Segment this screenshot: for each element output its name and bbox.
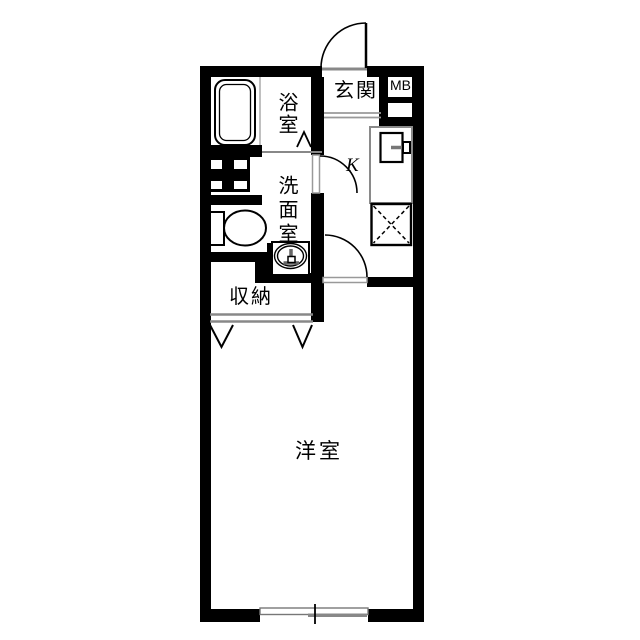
floorplan: 玄関 MB 浴室 洗面室 K 収納 洋室 [0,0,640,640]
entrance-door-arc [321,23,366,68]
closet-doors-icon [210,315,313,348]
label-storage: 収納 [229,287,273,308]
label-kitchen: K [346,156,359,176]
bath-door-marker-icon [297,132,311,147]
label-meter-box: MB [388,78,413,93]
genkan-step-icon [324,113,381,118]
room-door-leaf [323,278,367,283]
kitchen-door-leaf [313,155,320,193]
toilet-icon [210,211,266,246]
label-western-room: 洋室 [295,441,343,463]
kitchen-faucet-handle [403,142,410,153]
fixtures-layer [0,0,640,640]
label-entrance: 玄関 [334,81,378,102]
sliding-window-icon [260,604,368,624]
washing-machine-pan-icon [208,157,250,192]
refrigerator-space-icon [372,204,412,245]
room-door-arc [325,235,367,277]
bathtub-icon [215,80,255,145]
label-washroom: 洗面室 [275,175,296,247]
label-bathroom: 浴室 [275,92,296,136]
